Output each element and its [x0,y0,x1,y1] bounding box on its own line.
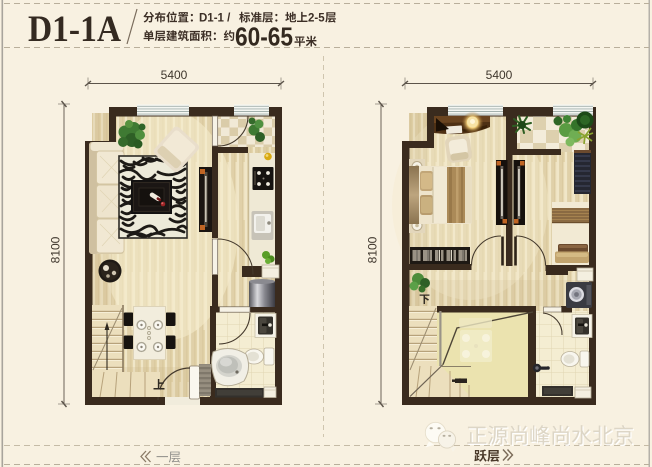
svg-text:D1-1 /: D1-1 / [199,13,231,25]
svg-text:5400: 5400 [486,68,513,82]
svg-text:8100: 8100 [366,236,380,263]
svg-text:D1-1A: D1-1A [28,9,121,50]
svg-text:8100: 8100 [49,236,63,263]
svg-text:5400: 5400 [161,68,188,82]
svg-text:2-5: 2-5 [308,13,325,25]
svg-text:60-65: 60-65 [235,22,293,52]
